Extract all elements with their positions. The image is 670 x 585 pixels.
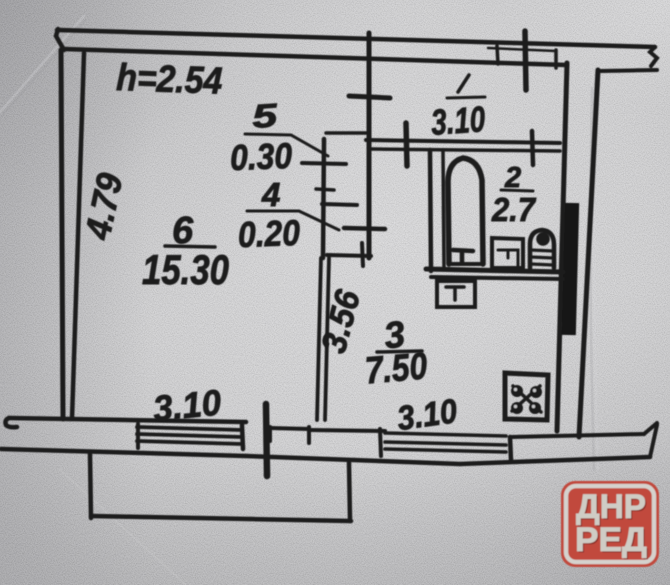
svg-text:2.7: 2.7: [491, 191, 536, 228]
svg-text:h=2.54: h=2.54: [116, 57, 223, 103]
svg-text:5: 5: [251, 98, 280, 136]
svg-text:15.30: 15.30: [142, 246, 229, 293]
svg-text:РЕД: РЕД: [575, 521, 647, 559]
svg-text:0.20: 0.20: [237, 212, 300, 255]
svg-text:4: 4: [261, 176, 280, 213]
svg-text:0.30: 0.30: [229, 135, 292, 178]
svg-text:7.50: 7.50: [363, 345, 428, 392]
svg-text:3.10: 3.10: [430, 98, 487, 143]
svg-text:3.10: 3.10: [151, 381, 223, 429]
svg-text:2: 2: [504, 162, 521, 194]
